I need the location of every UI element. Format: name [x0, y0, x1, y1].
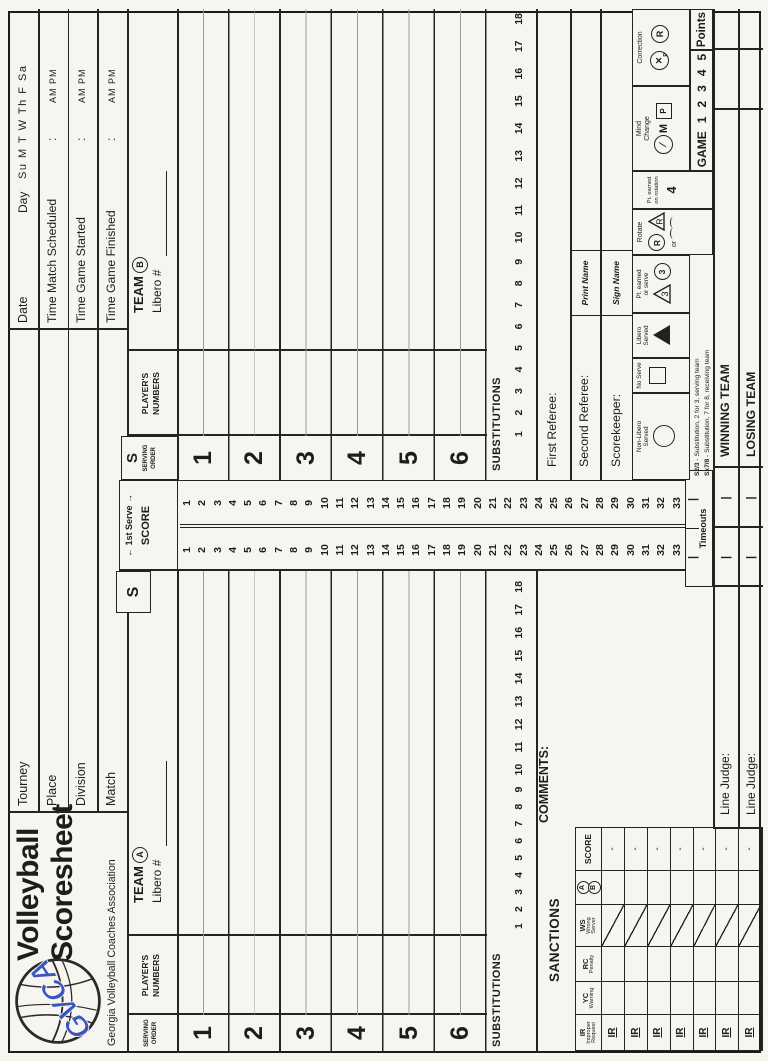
score-value: 4 [226, 529, 241, 571]
score-value: 32 [654, 529, 669, 571]
score-value: 27 [578, 529, 593, 571]
substitution-number: 16 [513, 627, 525, 639]
first-referee-label: First Referee: [545, 393, 559, 467]
volleyball-logo-icon: GVCA [12, 955, 104, 1047]
sanction-cell [671, 946, 694, 981]
legend-libero-served: Libero Served [632, 313, 690, 358]
score-value: 15 [394, 482, 409, 524]
line-judge-label-1: Line Judge: [718, 753, 732, 815]
sanction-score-cell: - [671, 828, 694, 870]
rule-line [738, 9, 740, 829]
serving-order-header-b: SERVINGORDER [143, 437, 158, 479]
score-value: 16 [409, 482, 424, 524]
time-finished-label: Time Game Finished [104, 210, 118, 323]
rule-line [713, 827, 763, 829]
sanction-row-ir: IR [716, 1014, 739, 1050]
grid-sub-lines-b [178, 9, 462, 436]
substitution-number: 12 [513, 719, 525, 731]
substitution-number: 1 [513, 923, 525, 929]
substitution-number: 16 [513, 68, 525, 80]
title-line1: Volleyball [12, 828, 46, 961]
game-number: 1 [695, 117, 709, 124]
rule-line [600, 9, 602, 480]
libero-line [166, 171, 167, 256]
substitution-number: 4 [513, 872, 525, 878]
game-label: GAME [695, 131, 709, 167]
score-value: 31 [639, 482, 654, 524]
substitution-number: 7 [513, 821, 525, 827]
substitutions-label-a: SUBSTITUTIONS [491, 953, 503, 1047]
substitution-number: 6 [513, 838, 525, 844]
score-value: 14 [379, 529, 394, 571]
serving-order-number: 3 [281, 436, 332, 480]
sanction-ws-slash-cell [694, 904, 717, 946]
svg-text:R: R [655, 219, 665, 225]
substitution-number: 2 [513, 410, 525, 416]
substitution-number: 15 [513, 650, 525, 662]
score-value: 17 [425, 482, 440, 524]
sanction-ws-slash-cell [625, 904, 648, 946]
score-value: 23 [517, 529, 532, 571]
sanction-score-cell: - [739, 828, 762, 870]
rule-line [38, 9, 40, 813]
score-value: 19 [455, 482, 470, 524]
sanction-cell [694, 946, 717, 981]
score-value: 3 [211, 529, 226, 571]
substitution-number: 17 [513, 604, 525, 616]
sanction-ws-slash-cell [739, 904, 762, 946]
ampm-label: AM PM [48, 68, 58, 103]
sanction-cell [739, 946, 762, 981]
score-value: 29 [608, 482, 623, 524]
ampm-label: AM PM [77, 68, 87, 103]
game-number-box: GAME 12345 [690, 50, 713, 171]
timeouts-box: | | Timeouts [685, 470, 713, 587]
sanction-row-ir: IR [739, 1014, 762, 1050]
scorekeeper-label: Scorekeeper: [609, 394, 623, 467]
substitution-number: 5 [513, 345, 525, 351]
substitution-number: 14 [513, 123, 525, 135]
substitution-numbers-b: 123456789101112131415161718 [513, 13, 525, 437]
no-serve-square-icon [649, 367, 666, 384]
substitution-number: 6 [513, 324, 525, 330]
score-value: 22 [501, 482, 516, 524]
sanction-ws-slash-cell [716, 904, 739, 946]
sanction-cell [625, 981, 648, 1014]
scanned-scoresheet-page: GVCA Volleyball Scoresheet Georgia Volle… [0, 0, 768, 1061]
score-value: 1 [180, 482, 195, 524]
substitution-number: 10 [513, 764, 525, 776]
substitution-number: 18 [513, 581, 525, 593]
score-value: 2 [195, 529, 210, 571]
sanctions-table: IRImproperRequest YCWarning RCPenalty WS… [575, 827, 763, 1051]
substitution-number: 10 [513, 232, 525, 244]
score-value: 33 [670, 529, 685, 571]
points-header: Points [690, 9, 713, 50]
serving-order-number: 2 [229, 436, 280, 480]
score-value: 28 [593, 482, 608, 524]
serve-box-b: S [124, 437, 141, 479]
substitution-number: 12 [513, 177, 525, 189]
score-value: 11 [333, 529, 348, 571]
substitutions-label-b: SUBSTITUTIONS [491, 377, 503, 471]
correction-x-circle-icon: ✕P [650, 51, 669, 70]
rotation-example-number: 4 [664, 172, 679, 208]
legend-non-libero-served: Non-Libero Served [632, 393, 690, 480]
substitution-notation-notes: S2/3 - Substitution, 2 for 3, serving te… [693, 350, 712, 476]
rule-line [8, 811, 128, 813]
winning-game-cell-b: | [713, 468, 738, 528]
timeouts-label: Timeouts [698, 471, 708, 586]
serving-order-column-b: 123456 [178, 436, 486, 480]
substitution-number: 11 [513, 205, 525, 216]
score-value: 7 [272, 482, 287, 524]
score-value: 24 [532, 529, 547, 571]
serving-order-number: 6 [435, 1015, 486, 1051]
serving-order-number: 1 [178, 1015, 229, 1051]
serving-order-column-a: 123456 [178, 1015, 486, 1051]
scoresheet-landscape: GVCA Volleyball Scoresheet Georgia Volle… [0, 0, 768, 1061]
rule-line [713, 48, 763, 50]
substitution-number: 15 [513, 95, 525, 107]
title-line2: Scoresheet [46, 804, 80, 961]
sanction-score-cell: - [694, 828, 717, 870]
day-abbreviations: Su M T W Th F Sa [17, 65, 29, 179]
sanction-ws-slash-cell [602, 904, 625, 946]
score-value: 1 [180, 529, 195, 571]
rule-line [713, 108, 763, 110]
substitution-number: 1 [513, 431, 525, 437]
serving-order-number: 4 [332, 436, 383, 480]
team-b-libero-label: Libero # [150, 270, 164, 313]
score-value: 30 [624, 529, 639, 571]
score-value: 18 [440, 529, 455, 571]
sign-name-label: Sign Name [600, 250, 632, 316]
circle-r-icon: R [648, 235, 665, 252]
score-value: 15 [394, 529, 409, 571]
score-value: 26 [562, 482, 577, 524]
sanction-row-ir: IR [648, 1014, 671, 1050]
sanction-cell [602, 870, 625, 904]
sanction-cell [694, 870, 717, 904]
substitution-number: 9 [513, 787, 525, 793]
score-value: 6 [256, 482, 271, 524]
substitution-number: 13 [513, 150, 525, 162]
score-value: 20 [471, 482, 486, 524]
winning-team-label: WINNING TEAM [718, 364, 732, 457]
sanction-cell [739, 870, 762, 904]
mind-change-p-box-icon: P [656, 103, 672, 119]
score-value: 5 [241, 529, 256, 571]
legend-rotate: Rotate R R or [632, 209, 713, 255]
score-value: 22 [501, 529, 516, 571]
score-header: SCORE [140, 481, 152, 570]
score-value: 27 [578, 482, 593, 524]
substitution-number: 17 [513, 40, 525, 52]
field-label-tourney: Tourney [16, 762, 30, 806]
substitution-number: 3 [513, 889, 525, 895]
serving-order-header-a: SERVINGORDER [143, 1015, 159, 1051]
comments-label: COMMENTS: [537, 746, 551, 823]
score-value: 21 [486, 482, 501, 524]
rule-line [536, 9, 538, 480]
substitution-number: 14 [513, 673, 525, 685]
sanction-row-ir: IR [625, 1014, 648, 1050]
substitution-number: 3 [513, 388, 525, 394]
field-label-division: Division [74, 762, 88, 806]
legend-pt-earned-rotation: Pt. earned on rotation 4 [632, 171, 713, 209]
score-value: 25 [547, 529, 562, 571]
score-value: 20 [471, 529, 486, 571]
substitution-number: 11 [513, 741, 525, 752]
game-numbers: 12345 [695, 54, 709, 123]
sanction-cell [648, 870, 671, 904]
score-value: 9 [302, 482, 317, 524]
field-label-date: Date [16, 297, 30, 323]
sanction-cell [739, 981, 762, 1014]
score-columns-divider [180, 524, 685, 529]
team-b-label: TEAM B [131, 257, 148, 313]
substitution-number: 8 [513, 804, 525, 810]
substitution-number: 9 [513, 259, 525, 265]
sanction-score-cell: - [625, 828, 648, 870]
score-value: 5 [241, 482, 256, 524]
players-numbers-header-b: PLAYER'SNUMBERS [140, 351, 162, 436]
rule-line [97, 9, 99, 813]
sanction-cell [671, 870, 694, 904]
sanction-row-ir: IR [602, 1014, 625, 1050]
substitution-number: 13 [513, 696, 525, 708]
score-value: 8 [287, 529, 302, 571]
line-judge-label-2: Line Judge: [744, 753, 758, 815]
svg-text:3: 3 [660, 292, 670, 297]
serve-box-a: S [116, 571, 151, 613]
colon: : [74, 138, 88, 141]
legend-pt-earned-serve: Pt. earned or serve 3 3 [632, 255, 690, 313]
score-value: 18 [440, 482, 455, 524]
sanction-cell [625, 870, 648, 904]
sanction-row-ir: IR [694, 1014, 717, 1050]
sanctions-col-yc: YCWarning [576, 981, 602, 1014]
serving-order-number: 2 [229, 1015, 280, 1051]
time-started-label: Time Game Started [74, 217, 88, 323]
score-value: 16 [409, 529, 424, 571]
colon: : [104, 138, 118, 141]
sanction-cell [716, 981, 739, 1014]
mind-change-slash-circle-icon: ∕ [654, 135, 673, 154]
game-number: 2 [695, 101, 709, 108]
first-serve-header: ← 1st Serve → [124, 481, 134, 570]
score-value: 21 [486, 529, 501, 571]
serving-order-number: 1 [178, 436, 229, 480]
winning-game-cell-a: | [713, 528, 738, 587]
legend-mind-change: Mind Change ∕ M P [632, 86, 690, 171]
substitution-number: 7 [513, 302, 525, 308]
score-strip-header: ← 1st Serve → SCORE [119, 480, 178, 571]
legend-correction: Correction ✕P R [632, 9, 690, 86]
substitution-number: 8 [513, 280, 525, 286]
score-value: 23 [517, 482, 532, 524]
correction-r-circle-icon: R [651, 25, 669, 43]
score-value: 13 [364, 482, 379, 524]
score-value: 12 [348, 529, 363, 571]
libero-line [166, 761, 167, 846]
substitution-number: 5 [513, 855, 525, 861]
game-number: 3 [695, 85, 709, 92]
rule-line [8, 328, 128, 330]
substitution-number: 18 [513, 13, 525, 25]
score-value: 28 [593, 529, 608, 571]
score-value: 6 [256, 529, 271, 571]
score-value: 33 [670, 482, 685, 524]
sanctions-col-ws: WSWrongServer [576, 904, 602, 946]
serving-order-number: 4 [332, 1015, 383, 1051]
players-numbers-header-a: PLAYER'SNUMBERS [140, 936, 162, 1015]
sanction-ws-slash-cell [648, 904, 671, 946]
rule-line [570, 9, 572, 480]
score-value: 26 [562, 529, 577, 571]
triangle-3-icon: 3 [653, 285, 671, 305]
sanction-score-cell: - [602, 828, 625, 870]
second-referee-label: Second Referee: [577, 375, 591, 467]
serve-serving-order-header-b: S SERVINGORDER [121, 436, 178, 480]
score-value: 25 [547, 482, 562, 524]
score-value: 7 [272, 529, 287, 571]
score-value: 31 [639, 529, 654, 571]
sanction-row-ir: IR [671, 1014, 694, 1050]
circle-3-icon: 3 [654, 264, 671, 281]
sanction-cell [716, 946, 739, 981]
score-column-team-a: 1234567891011121314151617181920212223242… [180, 529, 685, 571]
rule-line [713, 9, 715, 829]
team-a-badge: A [132, 847, 148, 863]
score-value: 10 [318, 482, 333, 524]
losing-game-cell-a: | [738, 528, 763, 587]
score-value: 29 [608, 529, 623, 571]
serving-order-number: 6 [435, 436, 486, 480]
substitution-numbers-a: 123456789101112131415161718 [513, 581, 525, 929]
sanction-cell [648, 981, 671, 1014]
score-value: 32 [654, 482, 669, 524]
team-b-badge: B [132, 257, 148, 273]
colon: : [45, 138, 59, 141]
serving-order-number: 5 [384, 1015, 435, 1051]
sanctions-col-score: SCORE [576, 828, 602, 870]
score-value: 10 [318, 529, 333, 571]
game-number: 5 [695, 54, 709, 61]
time-scheduled-label: Time Match Scheduled [45, 199, 59, 323]
score-value: 17 [425, 529, 440, 571]
sanction-cell [671, 981, 694, 1014]
substitution-number: 4 [513, 367, 525, 373]
field-label-place: Place [45, 775, 59, 806]
sanction-cell [602, 946, 625, 981]
association-name: Georgia Volleyball Coaches Association [106, 859, 118, 1046]
game-number: 4 [695, 69, 709, 76]
sanction-cell [648, 946, 671, 981]
non-libero-circle-icon [653, 426, 675, 448]
team-a-libero-label: Libero # [150, 860, 164, 903]
score-value: 2 [195, 482, 210, 524]
score-value: 11 [333, 482, 348, 524]
sanctions-col-ir: IRImproperRequest [576, 1014, 602, 1050]
score-value: 8 [287, 482, 302, 524]
rule-line [68, 9, 70, 813]
score-value: 4 [226, 482, 241, 524]
score-value: 19 [455, 529, 470, 571]
sanction-score-cell: - [716, 828, 739, 870]
losing-game-cell-b: | [738, 468, 763, 528]
score-value: 24 [532, 482, 547, 524]
sanction-cell [625, 946, 648, 981]
sanction-cell [602, 981, 625, 1014]
legend-no-serve: No Serve [632, 358, 690, 393]
sanctions-title: SANCTIONS [547, 829, 562, 1051]
field-label-match: Match [104, 772, 118, 806]
rotate-or-marks: or [670, 210, 678, 254]
score-value: 13 [364, 529, 379, 571]
losing-team-label: LOSING TEAM [744, 372, 758, 457]
score-value: 9 [302, 529, 317, 571]
team-a-label: TEAM A [131, 847, 148, 903]
mind-change-m: M [658, 124, 670, 133]
libero-served-triangle-icon [652, 325, 671, 347]
substitution-number: 2 [513, 906, 525, 912]
triangle-r-icon: R [648, 213, 665, 232]
score-value: 12 [348, 482, 363, 524]
grid-sub-lines-a [178, 571, 462, 1015]
print-name-label: Print Name [570, 250, 600, 316]
score-value: 3 [211, 482, 226, 524]
serving-order-number: 3 [281, 1015, 332, 1051]
ampm-label: AM PM [107, 68, 117, 103]
score-value: 30 [624, 482, 639, 524]
sanction-cell [716, 870, 739, 904]
sanctions-col-ab: AB [576, 870, 602, 904]
score-column-team-b: 1234567891011121314151617181920212223242… [180, 482, 685, 524]
sanction-score-cell: - [648, 828, 671, 870]
sanction-cell [694, 981, 717, 1014]
sanctions-col-rc: RCPenalty [576, 946, 602, 981]
serving-order-number: 5 [384, 436, 435, 480]
sanction-ws-slash-cell [671, 904, 694, 946]
field-label-day: Day [16, 192, 30, 213]
score-value: 14 [379, 482, 394, 524]
